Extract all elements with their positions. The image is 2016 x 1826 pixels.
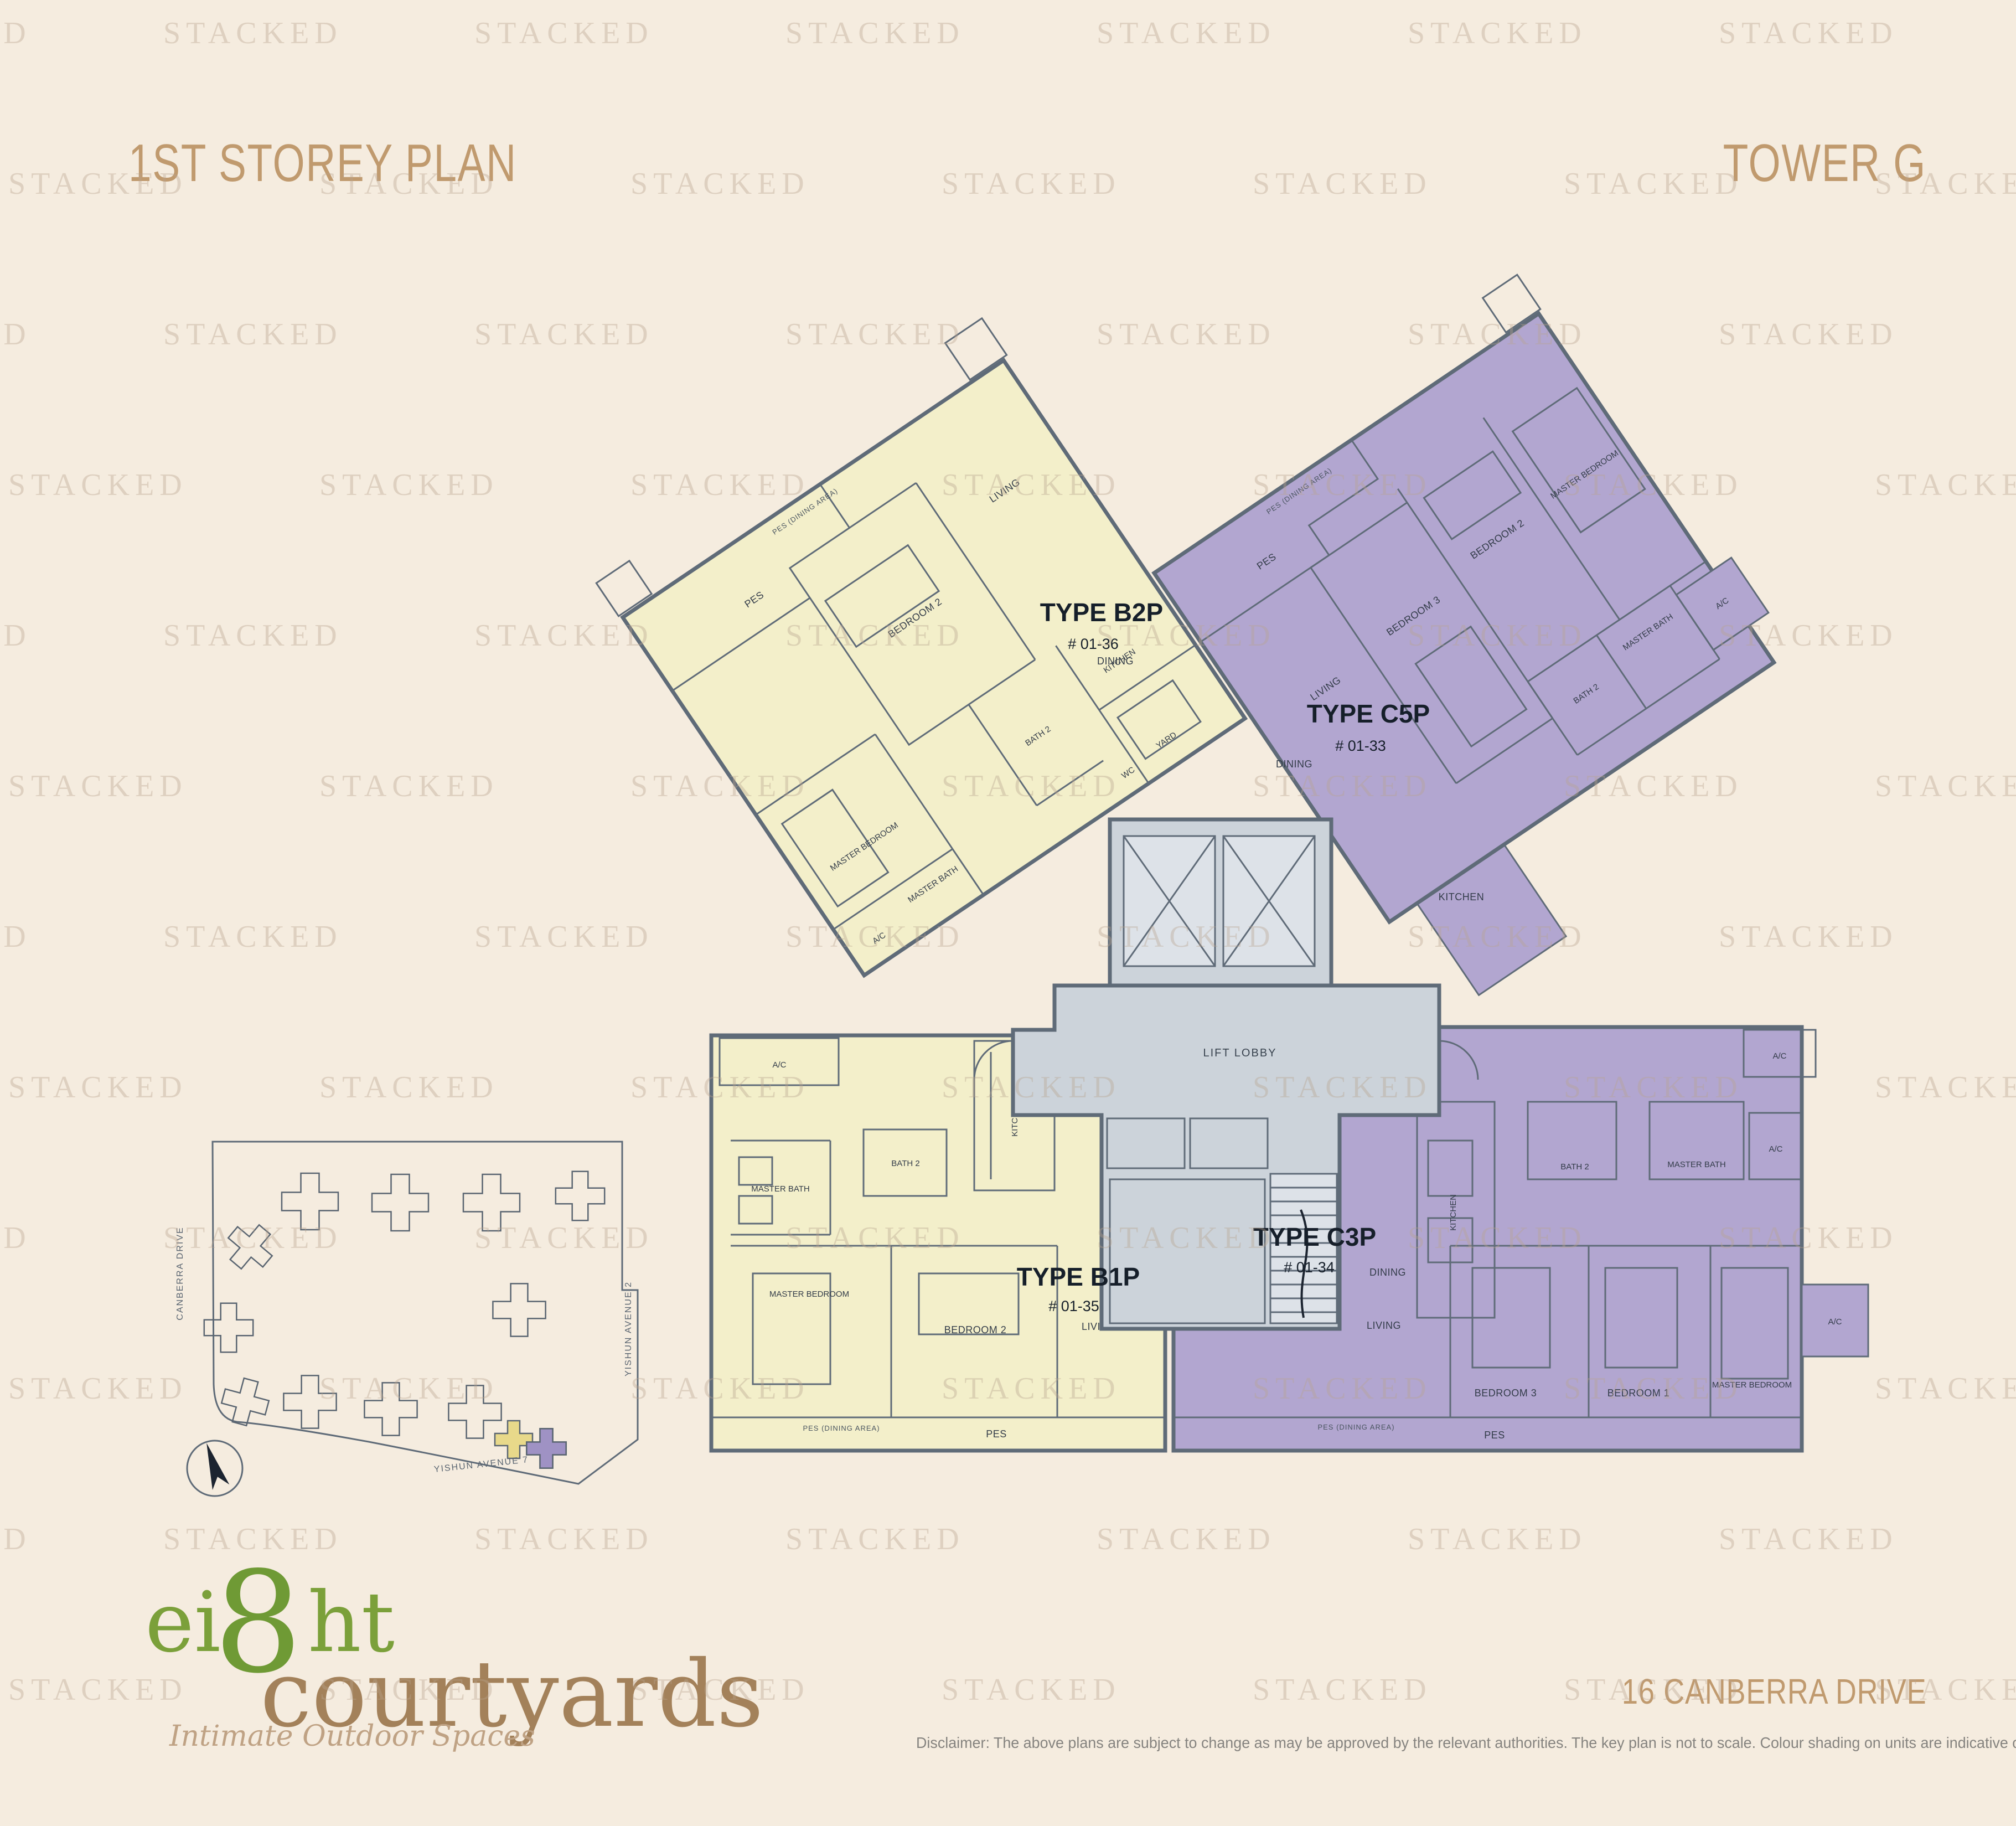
c5p-room-dining: DINING [1276,759,1312,770]
b1p-type-label: TYPE B1P [1017,1262,1140,1291]
b1p-room-master-bedroom: MASTER BEDROOM [769,1289,849,1299]
c3p-room-master-bath: MASTER BATH [1667,1160,1726,1169]
b2p-type-label: TYPE B2P [1040,598,1163,627]
c3p-room-master-bedroom: MASTER BEDROOM [1712,1380,1792,1390]
tower-footprints [204,1172,604,1438]
c3p-room-bath2: BATH 2 [1560,1162,1589,1172]
b1p-unit-no: # 01-35 [1048,1298,1099,1314]
b1p-room-bedroom2: BEDROOM 2 [944,1324,1007,1335]
c3p-room-bedroom1: BEDROOM 1 [1607,1387,1670,1399]
compass [187,1440,242,1496]
floor-plan-drawing: PES (DINING AREA) PES BEDROOM 2 LIVING M… [0,0,2016,1826]
b2p-room-dining: DINING [1097,656,1134,667]
b1p-room-bath2: BATH 2 [891,1159,919,1168]
b1p-room-ac: A/C [772,1060,786,1070]
c3p-room-kitchen: KITCHEN [1449,1194,1458,1231]
b1p-edge-label: PES (DINING AREA) [803,1424,880,1432]
b1p-room-pes: PES [986,1428,1007,1440]
b2p-unit-no: # 01-36 [1068,636,1119,652]
c5p-unit-no: # 01-33 [1335,737,1386,754]
compass-needle [198,1440,229,1490]
c3p-room-pes: PES [1484,1430,1505,1441]
c5p-type-label: TYPE C5P [1307,699,1430,728]
key-plan: CANBERRA DRIVE YISHUN AVENUE 2 YISHUN AV… [175,1142,638,1496]
road-label-left: CANBERRA DRIVE [175,1226,185,1320]
c3p-unit-no: # 01-34 [1284,1259,1335,1276]
lift-lobby-label: LIFT LOBBY [1203,1047,1276,1059]
c3p-room-ac-ledge: A/C [1828,1317,1842,1327]
road-label-right: YISHUN AVENUE 2 [624,1281,633,1376]
c3p-type-label: TYPE C3P [1253,1223,1376,1251]
c3p-room-ac-top: A/C [1772,1051,1786,1061]
floor-plan-page: PES (DINING AREA) PES BEDROOM 2 LIVING M… [0,0,2016,1826]
c3p-room-living: LIVING [1367,1320,1401,1331]
c3p-room-bedroom3: BEDROOM 3 [1475,1387,1537,1399]
b1p-room-master-bath: MASTER BATH [751,1184,810,1194]
c5p-room-kitchen: KITCHEN [1439,891,1485,902]
c3p-room-dining: DINING [1369,1267,1406,1278]
c3p-edge-label: PES (DINING AREA) [1317,1423,1394,1431]
c3p-room-ac-right: A/C [1769,1144,1782,1154]
